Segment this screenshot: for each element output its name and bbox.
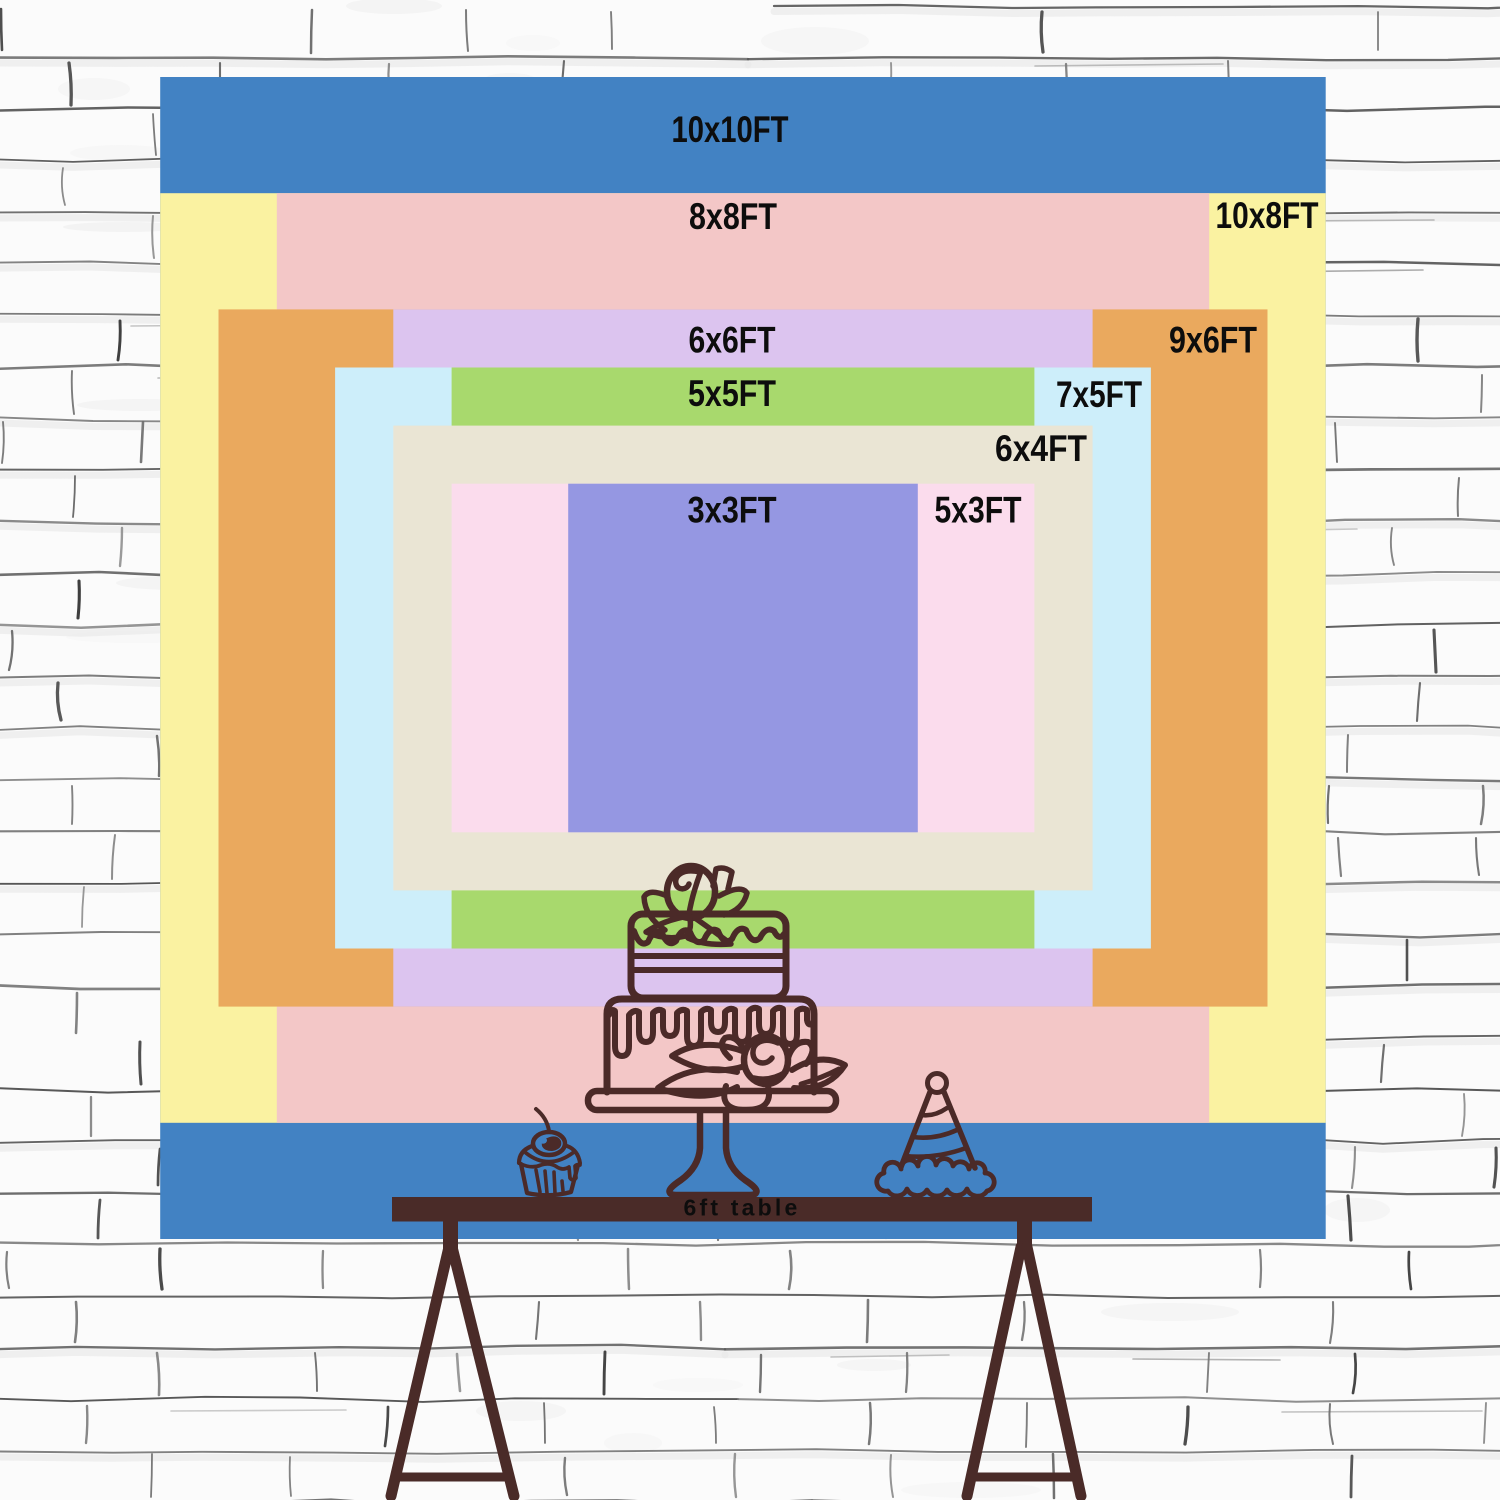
svg-text:9x6FT: 9x6FT bbox=[1169, 320, 1257, 361]
svg-text:6x6FT: 6x6FT bbox=[689, 320, 776, 361]
svg-text:5x3FT: 5x3FT bbox=[935, 490, 1022, 531]
svg-text:6x4FT: 6x4FT bbox=[995, 428, 1087, 469]
svg-text:8x8FT: 8x8FT bbox=[689, 196, 777, 237]
svg-text:10x10FT: 10x10FT bbox=[672, 109, 789, 150]
svg-text:3x3FT: 3x3FT bbox=[688, 490, 777, 531]
svg-text:5x5FT: 5x5FT bbox=[688, 373, 776, 414]
svg-text:10x8FT: 10x8FT bbox=[1216, 195, 1319, 236]
svg-text:7x5FT: 7x5FT bbox=[1056, 374, 1142, 415]
svg-text:6ft table: 6ft table bbox=[684, 1195, 801, 1221]
